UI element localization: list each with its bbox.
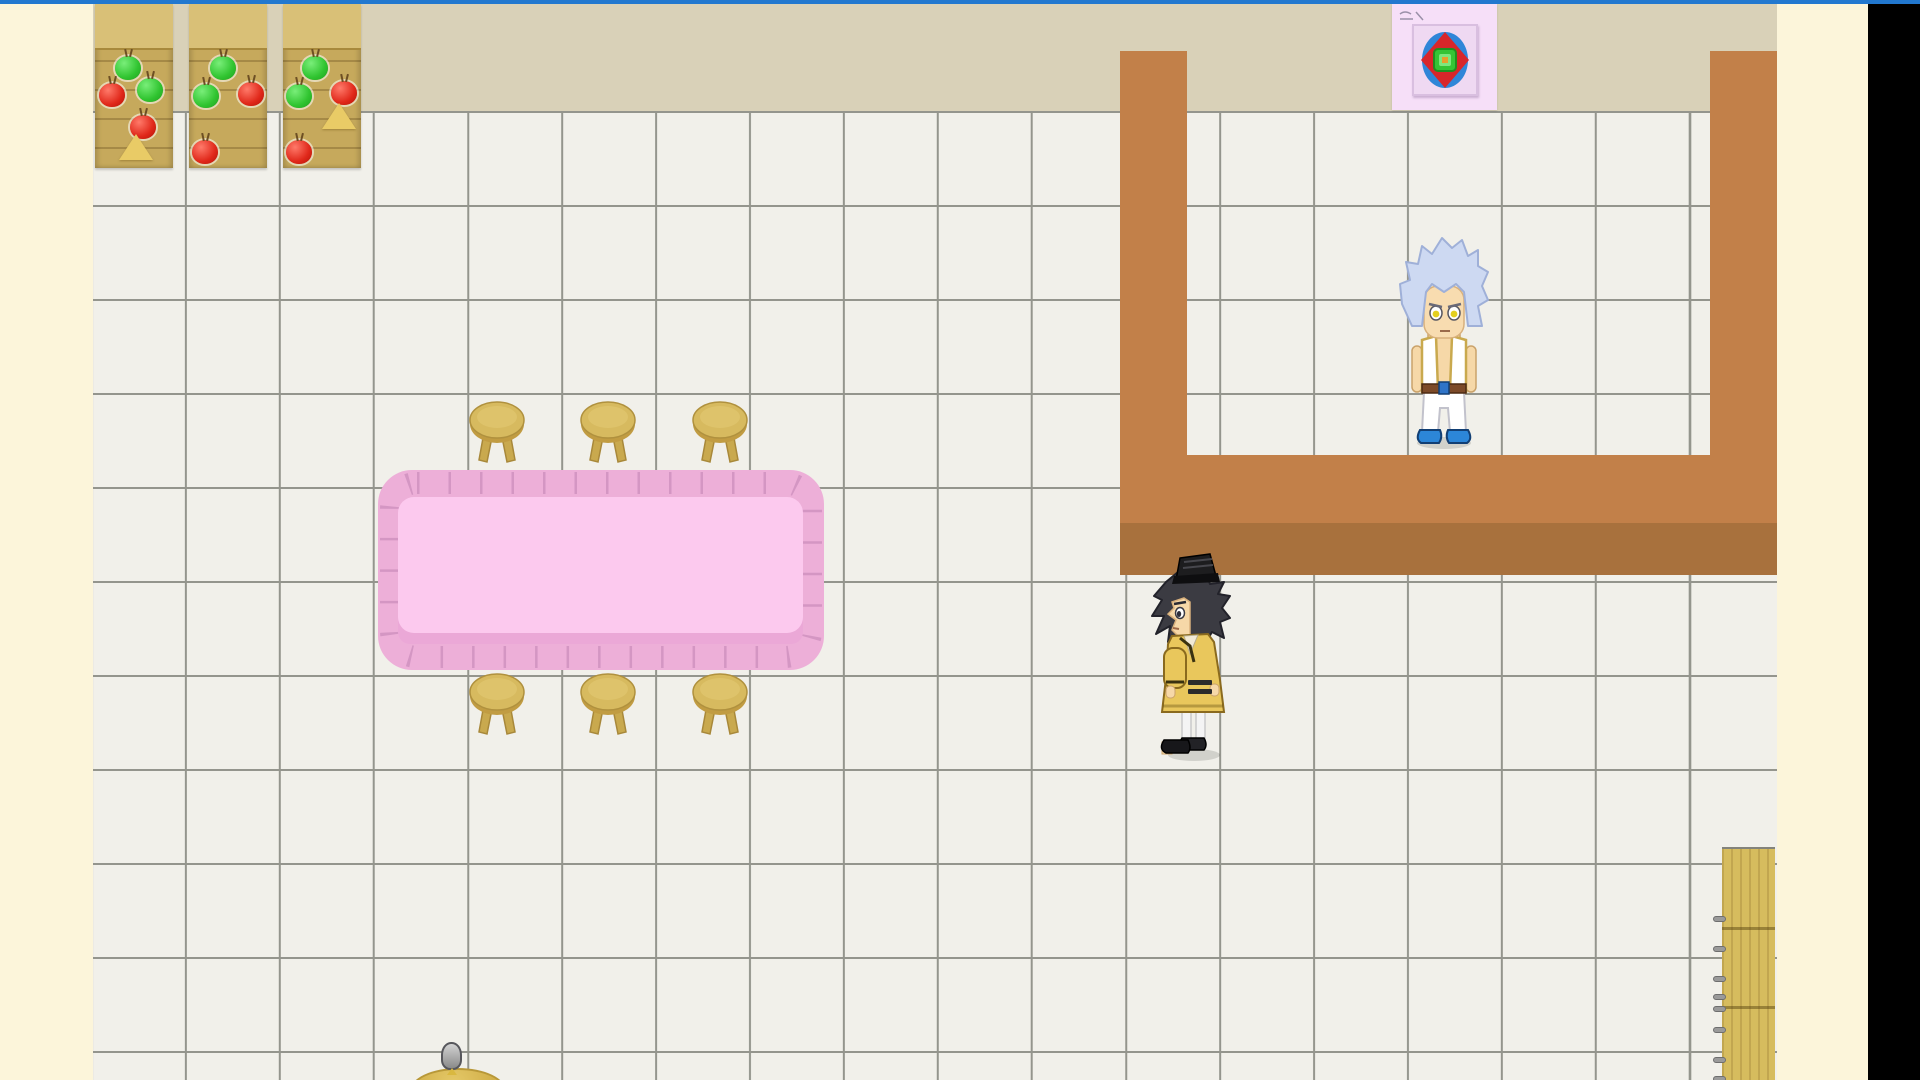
character-yellow-robe[interactable] [1150, 546, 1242, 762]
peg-icon [1713, 994, 1726, 1000]
screen-black-bar [1868, 0, 1920, 1080]
peg-icon [1713, 916, 1726, 922]
stool [690, 400, 750, 466]
apple-red-icon [192, 140, 218, 164]
peg-icon [1713, 1027, 1726, 1033]
apple-green-icon [193, 84, 219, 108]
fruit-stand-top [95, 4, 173, 50]
stool [578, 400, 638, 466]
apple-red-icon [286, 140, 312, 164]
partition-wall-right-column [1710, 51, 1777, 523]
game-viewport[interactable] [0, 0, 1920, 1080]
dining-table [378, 470, 824, 670]
apple-green-icon [286, 84, 312, 108]
apple-green-icon [115, 56, 141, 80]
cheese-wedge-icon [119, 134, 153, 160]
stool [467, 672, 527, 738]
plank-seam [1722, 927, 1775, 930]
poster-art-icon [1414, 26, 1476, 94]
screen-band-right [1777, 0, 1868, 1080]
stool [578, 672, 638, 738]
apple-red-icon [99, 83, 125, 107]
screen-band-left [0, 0, 93, 1080]
poster [1392, 4, 1497, 110]
stool [467, 400, 527, 466]
stool [690, 672, 750, 738]
poster-frame [1412, 24, 1478, 96]
apple-red-icon [238, 82, 264, 106]
seated-figure-collar [447, 1068, 457, 1075]
screen-top-blue-strip [0, 0, 1920, 4]
apple-green-icon [137, 78, 163, 102]
apple-green-icon [210, 56, 236, 80]
seated-figure-group[interactable] [410, 1042, 506, 1080]
plank-seam [1722, 1006, 1775, 1009]
fruit-stand-top [189, 4, 267, 50]
partition-wall-left-column [1120, 51, 1187, 523]
cheese-wedge-icon [322, 103, 356, 129]
apple-red-icon [331, 81, 357, 105]
floor-tiles [0, 111, 1920, 1080]
peg-icon [1713, 976, 1726, 982]
poster-scribble-icon [1396, 7, 1430, 23]
fruit-stand-top [283, 4, 361, 50]
fruit-stand [95, 4, 173, 168]
fruit-stand [283, 4, 361, 168]
character-white-hair[interactable] [1398, 234, 1490, 450]
fruit-stand [189, 4, 267, 168]
round-table [410, 1068, 506, 1080]
peg-icon [1713, 1006, 1726, 1012]
peg-icon [1713, 1057, 1726, 1063]
apple-green-icon [302, 56, 328, 80]
peg-icon [1713, 946, 1726, 952]
partition-wall-crossbar [1120, 455, 1777, 523]
seated-figure-head [441, 1042, 462, 1070]
wooden-plank-shelf [1722, 847, 1775, 1080]
peg-icon [1713, 1076, 1726, 1080]
